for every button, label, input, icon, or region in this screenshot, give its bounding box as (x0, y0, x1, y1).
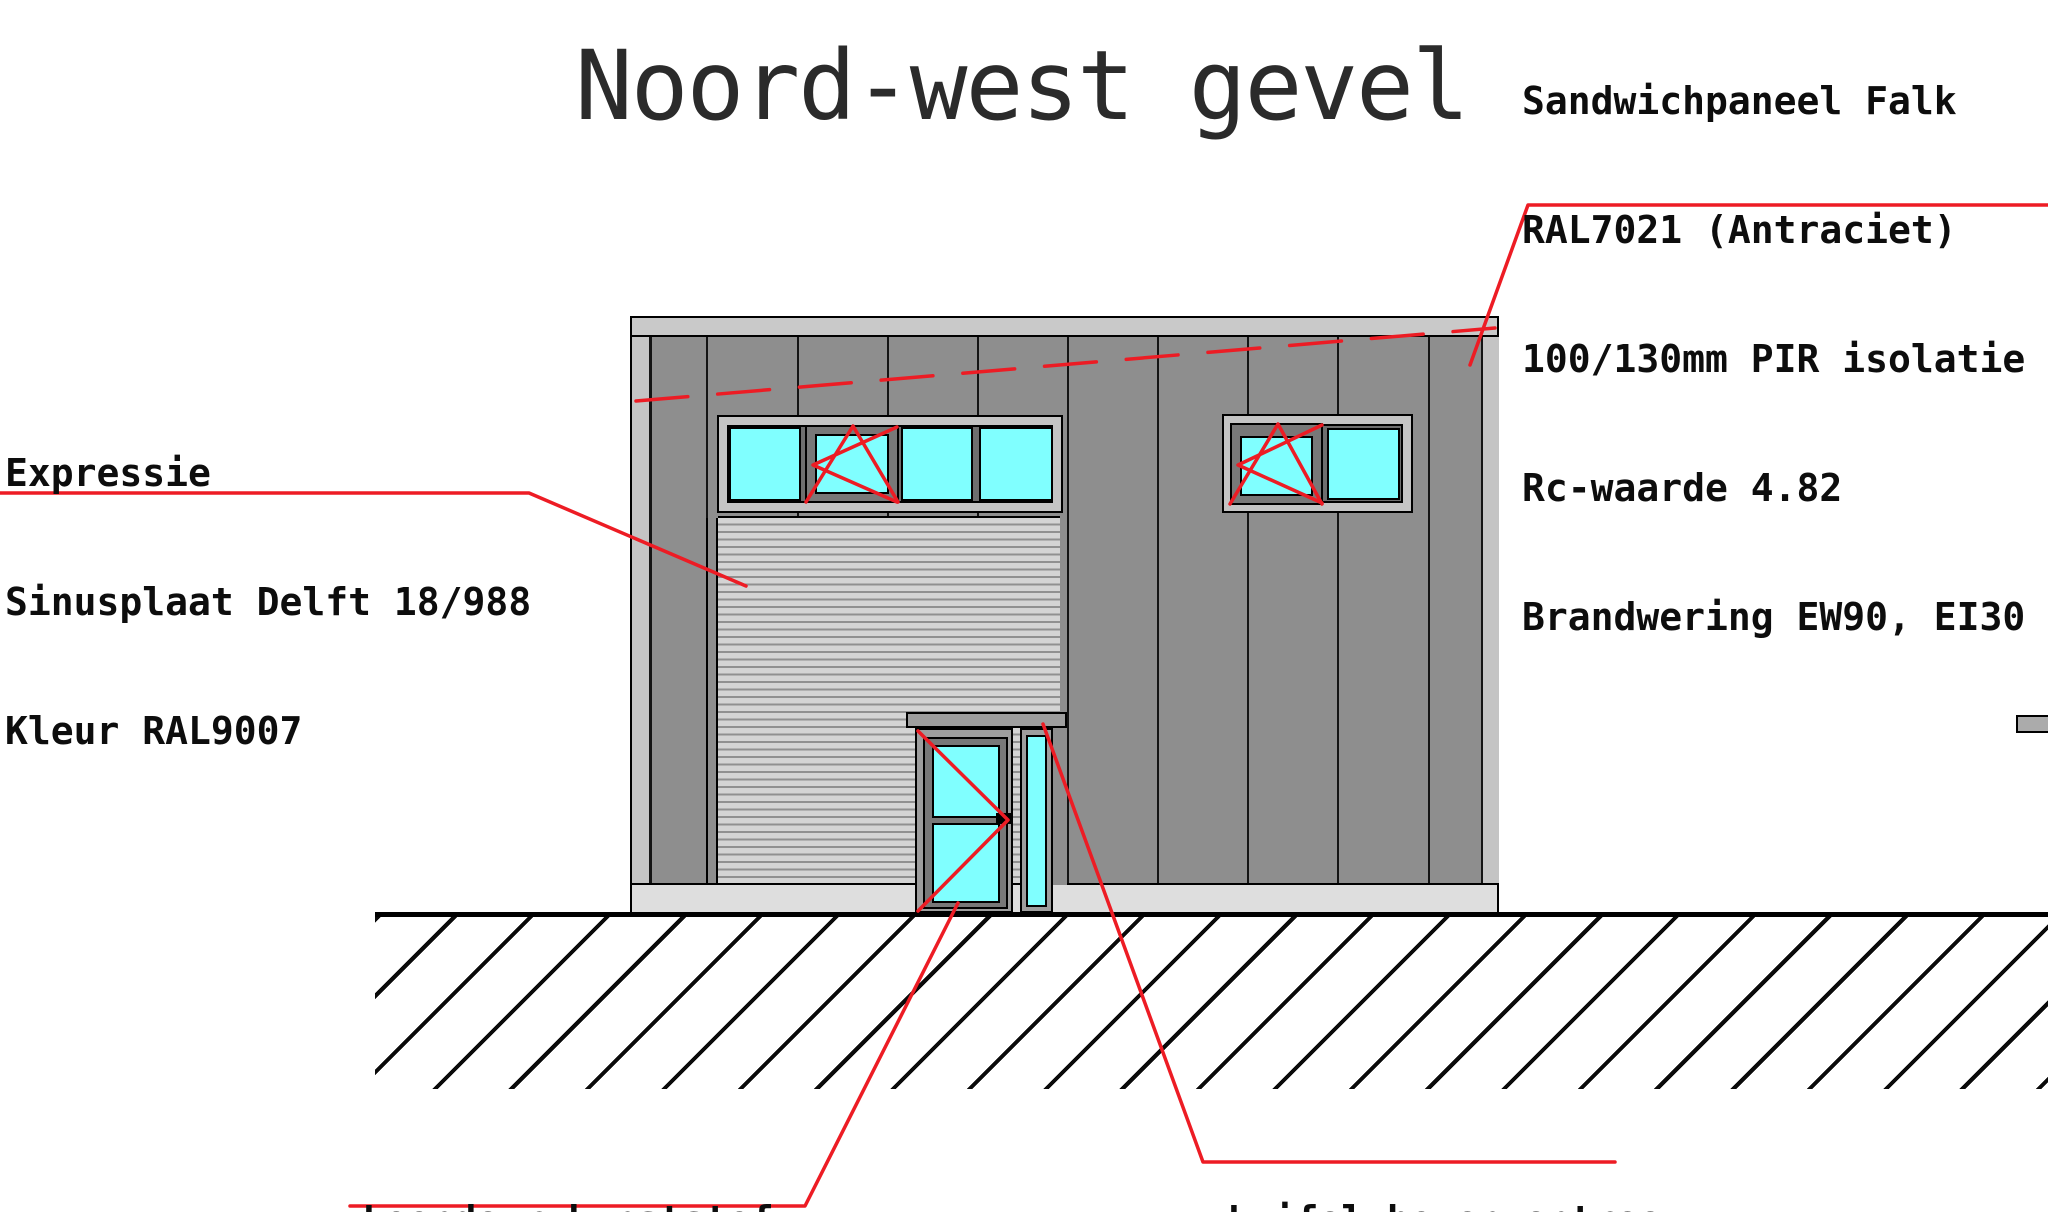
annotation-line: Brandwering EW90, EI30 (1522, 596, 2025, 639)
annotation-panel-spec: Sandwichpaneel Falk RAL7021 (Antraciet) … (1522, 0, 2025, 725)
annotation-line: Loopdeur kunststof (362, 1199, 774, 1212)
door-glass-lower (932, 823, 1000, 903)
annotation-line: 100/130mm PIR isolatie (1522, 338, 2025, 381)
corrugation-edge-trim (706, 518, 718, 885)
annotation-line: Luifel boven entree (1227, 1199, 1662, 1212)
panel-seam (1157, 337, 1159, 885)
window-pane (1327, 428, 1400, 500)
annotation-line: Sinusplaat Delft 18/988 (5, 581, 531, 624)
annotation-line: Expressie (5, 452, 531, 495)
window-pane (815, 434, 889, 494)
annotation-door-label: Loopdeur kunststof met ramen (362, 1113, 774, 1212)
elevation-drawing: Noord-west gevel (0, 0, 2048, 1212)
window-pane (1240, 436, 1313, 496)
entrance-canopy (906, 712, 1067, 728)
panel-seam (650, 337, 652, 885)
corner-trim-left (632, 337, 651, 885)
panel-seam (1067, 337, 1069, 885)
window-pane (901, 427, 973, 501)
window-pane (729, 427, 801, 501)
plinth-band (630, 883, 1499, 915)
annotation-cladding-spec: Expressie Sinusplaat Delft 18/988 Kleur … (5, 366, 531, 839)
window-pane (979, 427, 1053, 501)
door-handle (996, 813, 1012, 824)
roof-parapet (630, 316, 1499, 337)
annotation-line: RAL7021 (Antraciet) (1522, 209, 2025, 252)
corner-trim-right (1481, 337, 1499, 885)
door-glass-upper (932, 745, 1000, 818)
ground-hatch (375, 917, 2048, 1089)
annotation-canopy-label: Luifel boven entree (1227, 1113, 1662, 1212)
panel-seam (1428, 337, 1430, 885)
annotation-line: Kleur RAL9007 (5, 710, 531, 753)
annotation-line: Rc-waarde 4.82 (1522, 467, 2025, 510)
page-title: Noord-west gevel (575, 30, 1468, 142)
sidelight-glass (1026, 735, 1047, 907)
annotation-line: Sandwichpaneel Falk (1522, 80, 2025, 123)
